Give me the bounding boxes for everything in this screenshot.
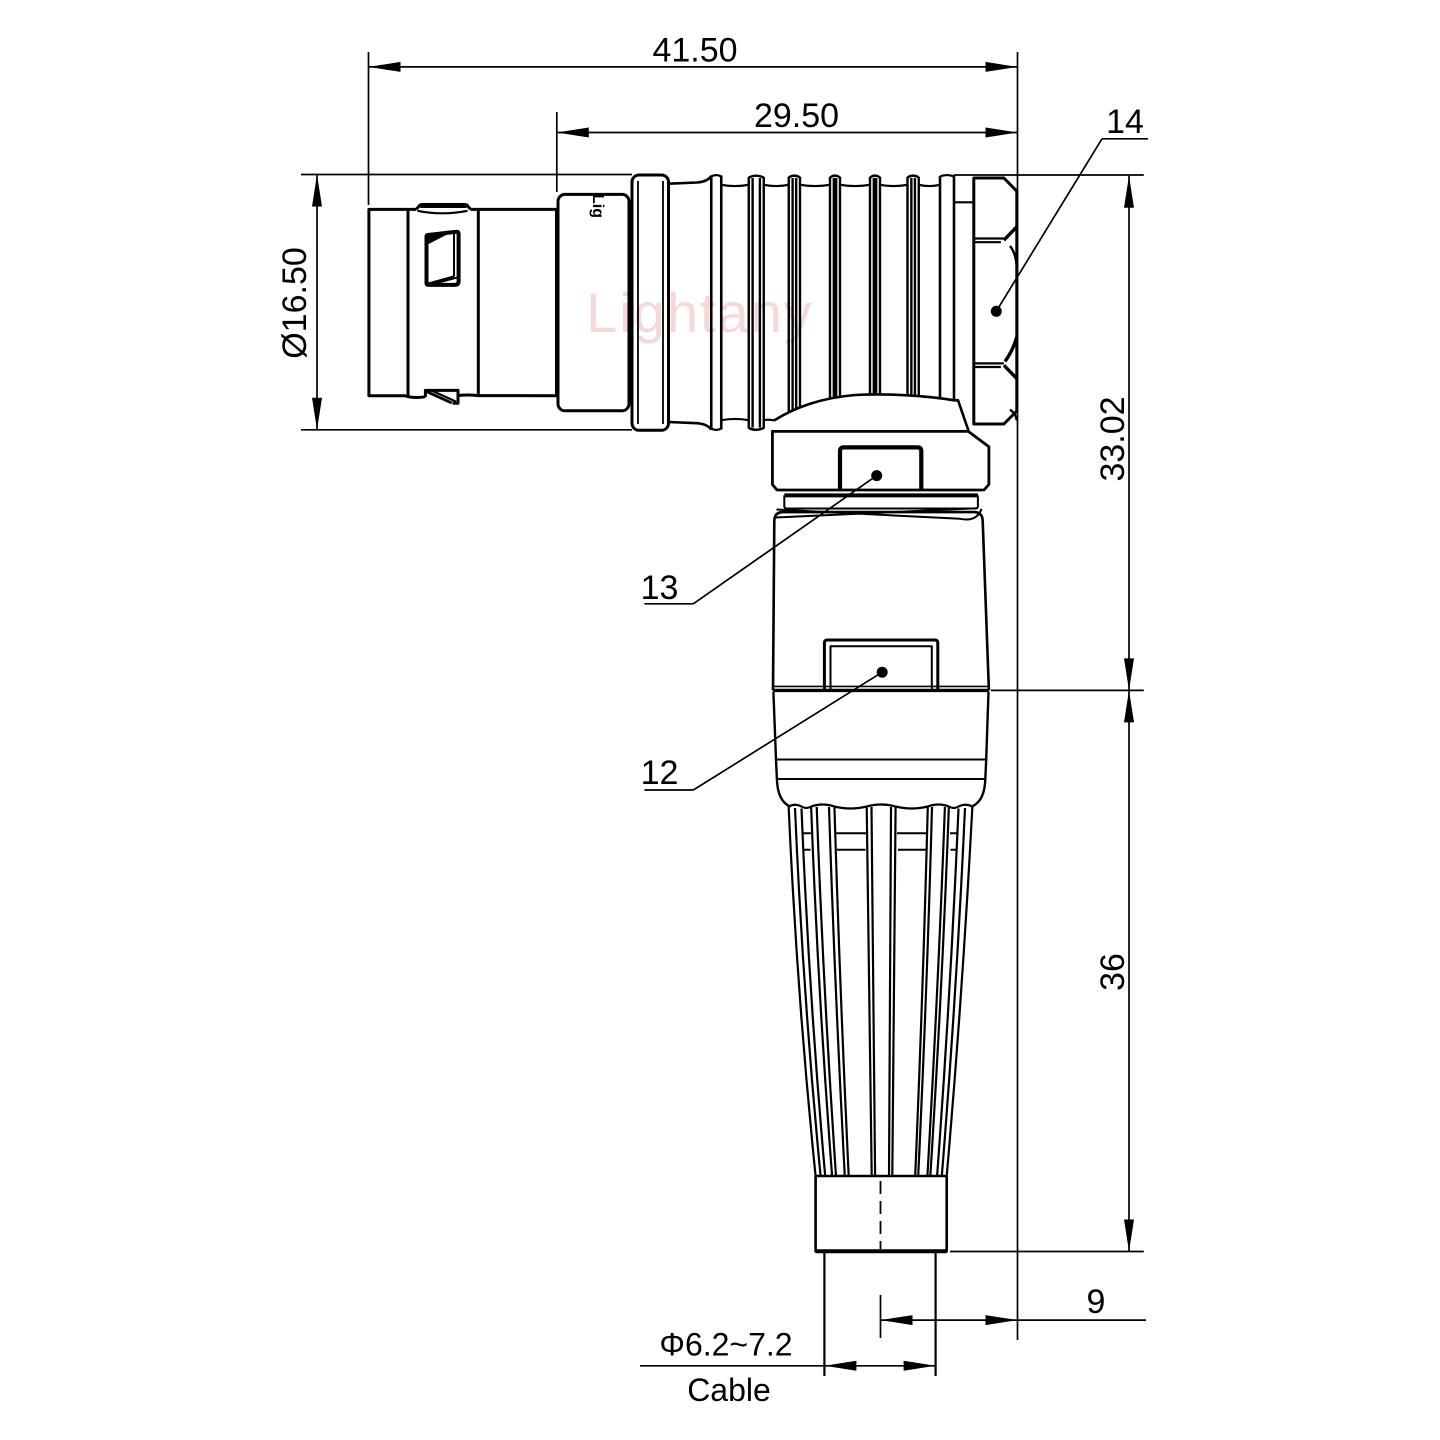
- svg-text:14: 14: [1106, 103, 1144, 141]
- svg-text:Ø16.50: Ø16.50: [276, 247, 314, 359]
- svg-text:36: 36: [1094, 953, 1132, 991]
- svg-text:29.50: 29.50: [754, 97, 839, 135]
- svg-text:9: 9: [1087, 1283, 1106, 1321]
- svg-text:41.50: 41.50: [652, 32, 737, 70]
- svg-text:13: 13: [641, 569, 679, 607]
- svg-text:Cable: Cable: [687, 1372, 771, 1408]
- svg-text:33.02: 33.02: [1094, 396, 1132, 481]
- svg-text:Lightany: Lightany: [586, 281, 814, 344]
- svg-text:Lig: Lig: [589, 194, 606, 218]
- svg-text:12: 12: [641, 754, 679, 792]
- svg-text:Φ6.2~7.2: Φ6.2~7.2: [659, 1327, 792, 1363]
